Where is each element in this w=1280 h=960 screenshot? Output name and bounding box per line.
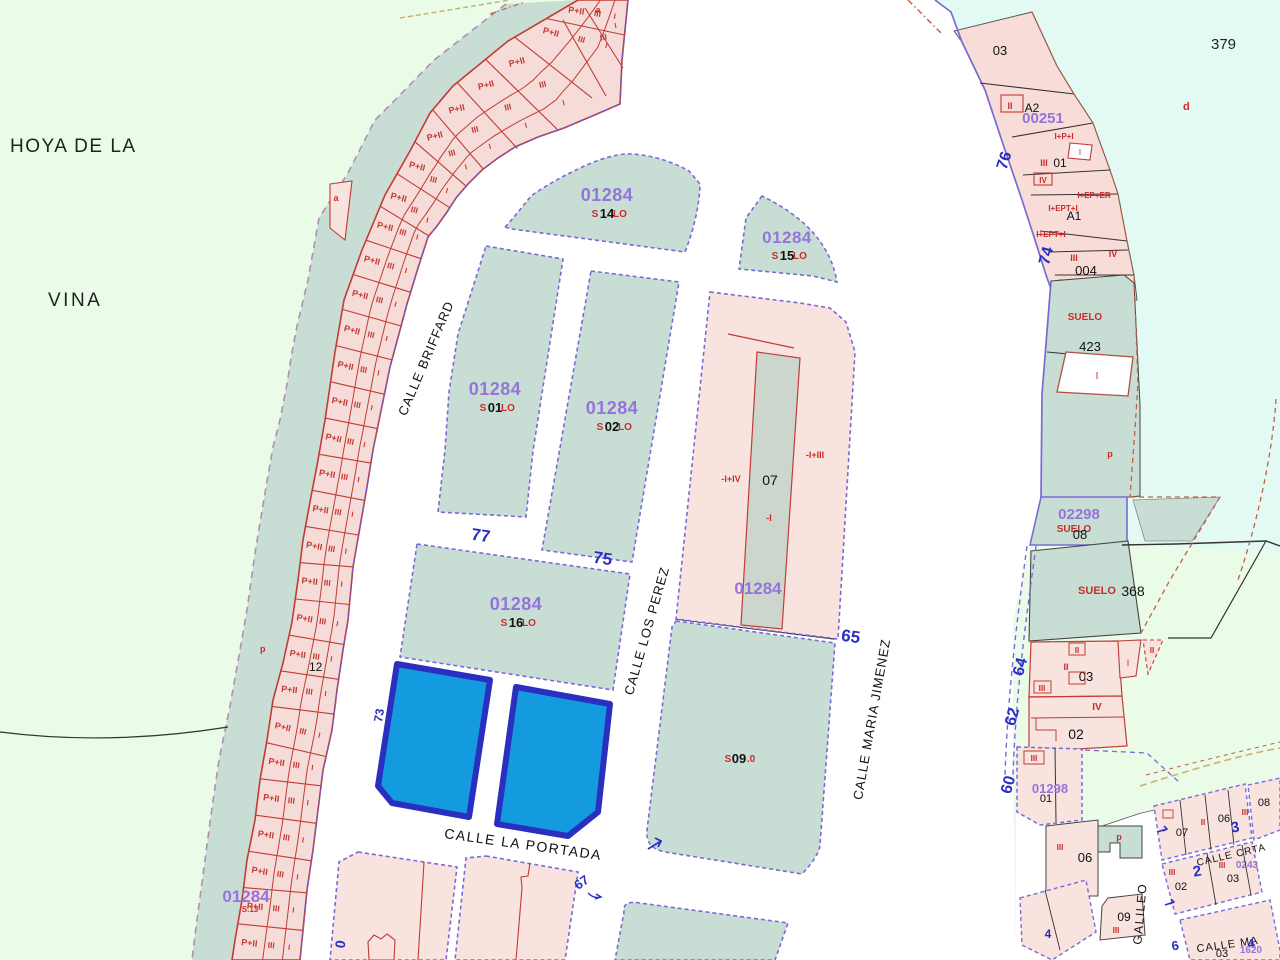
svg-text:III: III: [1031, 754, 1038, 763]
svg-text:LO: LO: [522, 618, 536, 629]
svg-text:VINA: VINA: [48, 290, 102, 311]
svg-text:S: S: [592, 209, 599, 220]
svg-text:III: III: [287, 795, 295, 806]
svg-text:III: III: [1057, 843, 1064, 852]
svg-text:73: 73: [371, 707, 387, 723]
svg-text:01284: 01284: [222, 887, 270, 906]
svg-text:I+P+I: I+P+I: [1054, 132, 1073, 141]
svg-text:P+II: P+II: [241, 937, 258, 949]
svg-text:004: 004: [1075, 263, 1097, 278]
svg-text:II: II: [1007, 101, 1012, 111]
svg-text:01284: 01284: [581, 185, 634, 205]
svg-text:I: I: [1096, 371, 1099, 382]
svg-text:LO: LO: [613, 209, 627, 220]
svg-text:4: 4: [1045, 927, 1052, 941]
svg-text:III: III: [267, 940, 275, 951]
svg-text:01284: 01284: [762, 228, 812, 247]
svg-text:III: III: [272, 903, 280, 914]
svg-text:I: I: [1079, 148, 1081, 157]
svg-text:II: II: [1150, 646, 1154, 655]
svg-text:A1: A1: [1067, 209, 1082, 223]
svg-text:II: II: [1063, 662, 1068, 672]
svg-text:II: II: [1075, 646, 1079, 655]
svg-text:III: III: [323, 577, 331, 588]
svg-text:0243: 0243: [1236, 860, 1259, 871]
svg-text:03: 03: [1227, 873, 1239, 885]
svg-text:01: 01: [1040, 793, 1052, 805]
svg-text:-I: -I: [766, 513, 772, 523]
svg-text:S.13: S.13: [242, 905, 259, 914]
svg-text:.0: .0: [747, 754, 756, 765]
svg-text:02298: 02298: [1058, 506, 1100, 523]
svg-text:HOYA DE LA: HOYA DE LA: [10, 136, 137, 157]
svg-text:02: 02: [1175, 881, 1187, 893]
svg-text:IV: IV: [1092, 702, 1102, 713]
svg-text:-I+IV: -I+IV: [721, 474, 740, 484]
svg-text:03: 03: [993, 43, 1007, 58]
svg-text:I+EPT+I: I+EPT+I: [1036, 230, 1065, 239]
svg-text:p: p: [260, 644, 266, 654]
svg-text:d: d: [1183, 101, 1190, 113]
svg-text:III: III: [1113, 926, 1120, 935]
svg-text:S: S: [772, 251, 779, 262]
svg-text:p: p: [1107, 449, 1113, 459]
svg-text:P+II: P+II: [281, 684, 298, 696]
svg-text:75: 75: [592, 548, 613, 569]
svg-text:01284: 01284: [490, 594, 543, 614]
svg-text:06: 06: [1078, 850, 1092, 865]
svg-text:368: 368: [1121, 583, 1145, 599]
svg-text:1620: 1620: [1240, 945, 1263, 956]
svg-text:06: 06: [1218, 813, 1230, 825]
svg-text:III: III: [1169, 868, 1176, 877]
svg-text:12: 12: [309, 660, 323, 674]
svg-text:LO: LO: [793, 251, 807, 262]
svg-text:08: 08: [1258, 797, 1270, 809]
svg-text:01284: 01284: [586, 398, 639, 418]
svg-text:III: III: [1070, 253, 1078, 263]
svg-text:77: 77: [470, 525, 491, 546]
svg-text:01284: 01284: [469, 379, 522, 399]
svg-text:I+EP+ER: I+EP+ER: [1077, 191, 1111, 200]
svg-text:LO: LO: [618, 422, 632, 433]
svg-text:IV: IV: [1109, 249, 1118, 259]
svg-text:07: 07: [762, 472, 778, 488]
svg-text:III: III: [282, 832, 290, 843]
svg-text:65: 65: [840, 626, 861, 647]
svg-text:III: III: [1039, 684, 1046, 693]
svg-text:III: III: [305, 686, 313, 697]
svg-text:LO: LO: [501, 403, 515, 414]
svg-text:III: III: [1242, 808, 1249, 817]
svg-text:S: S: [725, 754, 732, 765]
svg-text:SUELO: SUELO: [1068, 312, 1103, 323]
svg-text:I: I: [1127, 658, 1130, 668]
svg-text:09: 09: [1117, 910, 1131, 924]
svg-text:P+II: P+II: [301, 576, 318, 587]
svg-text:SUELO: SUELO: [1078, 585, 1116, 597]
svg-text:S: S: [597, 422, 604, 433]
svg-text:-I+III: -I+III: [806, 450, 824, 460]
svg-text:07: 07: [1176, 827, 1188, 839]
svg-text:09: 09: [732, 751, 746, 766]
svg-text:III: III: [1040, 158, 1048, 168]
svg-text:p: p: [1116, 832, 1122, 842]
svg-text:P+II: P+II: [263, 792, 280, 804]
svg-text:III: III: [292, 760, 300, 771]
svg-text:S: S: [501, 618, 508, 629]
svg-text:II: II: [1201, 818, 1205, 827]
svg-text:01284: 01284: [734, 579, 782, 598]
svg-text:00251: 00251: [1022, 110, 1064, 127]
svg-text:379: 379: [1211, 36, 1236, 53]
svg-text:01: 01: [1053, 156, 1067, 170]
svg-text:423: 423: [1079, 339, 1101, 354]
svg-text:02: 02: [1068, 726, 1084, 742]
svg-text:S: S: [480, 403, 487, 414]
svg-text:IV: IV: [1039, 176, 1047, 185]
svg-text:08: 08: [1073, 527, 1087, 542]
svg-text:03: 03: [1079, 669, 1093, 684]
